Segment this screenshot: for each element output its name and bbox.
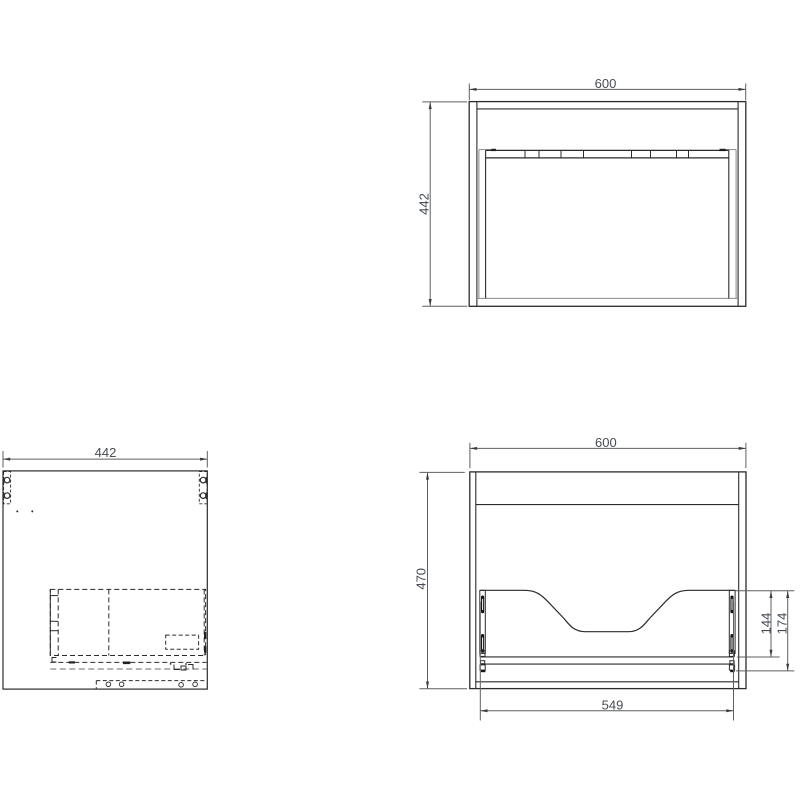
svg-text:600: 600 (595, 76, 617, 91)
svg-text:144: 144 (759, 613, 774, 635)
svg-text:442: 442 (417, 193, 432, 215)
svg-text:600: 600 (595, 435, 617, 450)
svg-text:549: 549 (602, 697, 624, 712)
svg-text:470: 470 (414, 568, 429, 590)
svg-text:442: 442 (95, 445, 117, 460)
svg-text:174: 174 (774, 613, 789, 635)
